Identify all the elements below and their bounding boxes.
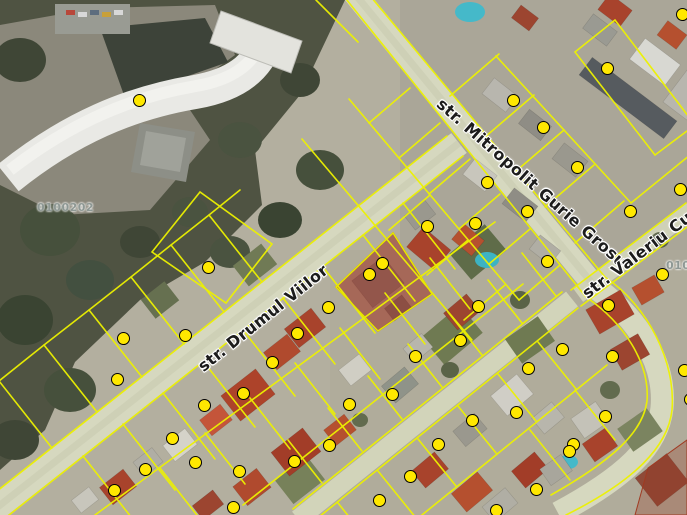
parcel-marker-dot[interactable] <box>521 205 534 218</box>
parcel-marker-dot[interactable] <box>472 300 485 313</box>
parcel-marker-dot[interactable] <box>481 176 494 189</box>
parcel-marker-dot[interactable] <box>624 205 637 218</box>
parcel-marker-dot[interactable] <box>133 94 146 107</box>
parcel-marker-dot[interactable] <box>454 334 467 347</box>
parcel-marker-dot[interactable] <box>421 220 434 233</box>
parcel-marker-dot[interactable] <box>189 456 202 469</box>
parcel-marker-dot[interactable] <box>563 445 576 458</box>
cadastral-code: 0100202 <box>37 201 94 214</box>
parcel-marker-dot[interactable] <box>530 483 543 496</box>
parcel-marker-dot[interactable] <box>166 432 179 445</box>
parcel-marker-dot[interactable] <box>469 217 482 230</box>
parcel-marker-dot[interactable] <box>202 261 215 274</box>
parcel-marker-dot[interactable] <box>571 161 584 174</box>
parcel-marker-dot[interactable] <box>490 504 503 515</box>
parcel-marker-dot[interactable] <box>288 455 301 468</box>
parcel-marker-dot[interactable] <box>227 501 240 514</box>
map-viewport[interactable]: str. Drumul Viilor str. Mitropolit Gurie… <box>0 0 687 515</box>
parcel-marker-dot[interactable] <box>198 399 211 412</box>
parcel-marker-dot[interactable] <box>601 62 614 75</box>
parcel-marker-dot[interactable] <box>409 350 422 363</box>
parcel-marker-dot[interactable] <box>404 470 417 483</box>
parcel-marker-dot[interactable] <box>108 484 121 497</box>
parcel-marker-dot[interactable] <box>432 438 445 451</box>
parcel-marker-dot[interactable] <box>522 362 535 375</box>
parcel-marker-dot[interactable] <box>599 410 612 423</box>
parcel-marker-dot[interactable] <box>291 327 304 340</box>
parcel-marker-dot[interactable] <box>507 94 520 107</box>
parcel-marker-dot[interactable] <box>343 398 356 411</box>
satellite-base <box>0 0 687 515</box>
parcel-marker-dot[interactable] <box>322 301 335 314</box>
cadastral-code: 0101 <box>666 259 687 272</box>
parcel-marker-dot[interactable] <box>323 439 336 452</box>
parcel-marker-dot[interactable] <box>678 364 687 377</box>
parcel-marker-dot[interactable] <box>266 356 279 369</box>
parcel-marker-dot[interactable] <box>139 463 152 476</box>
parcel-marker-dot[interactable] <box>237 387 250 400</box>
parcel-marker-dot[interactable] <box>541 255 554 268</box>
parcel-marker-dot[interactable] <box>111 373 124 386</box>
parcel-marker-dot[interactable] <box>376 257 389 270</box>
parcel-marker-dot[interactable] <box>117 332 130 345</box>
parcel-marker-dot[interactable] <box>373 494 386 507</box>
parcel-marker-dot[interactable] <box>602 299 615 312</box>
parcel-marker-dot[interactable] <box>537 121 550 134</box>
parcel-marker-dot[interactable] <box>363 268 376 281</box>
parcel-marker-dot[interactable] <box>179 329 192 342</box>
parcel-marker-dot[interactable] <box>656 268 669 281</box>
parcel-marker-dot[interactable] <box>674 183 687 196</box>
parcel-marker-dot[interactable] <box>510 406 523 419</box>
parcel-marker-dot[interactable] <box>556 343 569 356</box>
parcel-marker-dot[interactable] <box>386 388 399 401</box>
parcel-marker-dot[interactable] <box>466 414 479 427</box>
parcel-marker-dot[interactable] <box>606 350 619 363</box>
parcel-marker-dot[interactable] <box>676 8 687 21</box>
parcel-marker-dot[interactable] <box>233 465 246 478</box>
